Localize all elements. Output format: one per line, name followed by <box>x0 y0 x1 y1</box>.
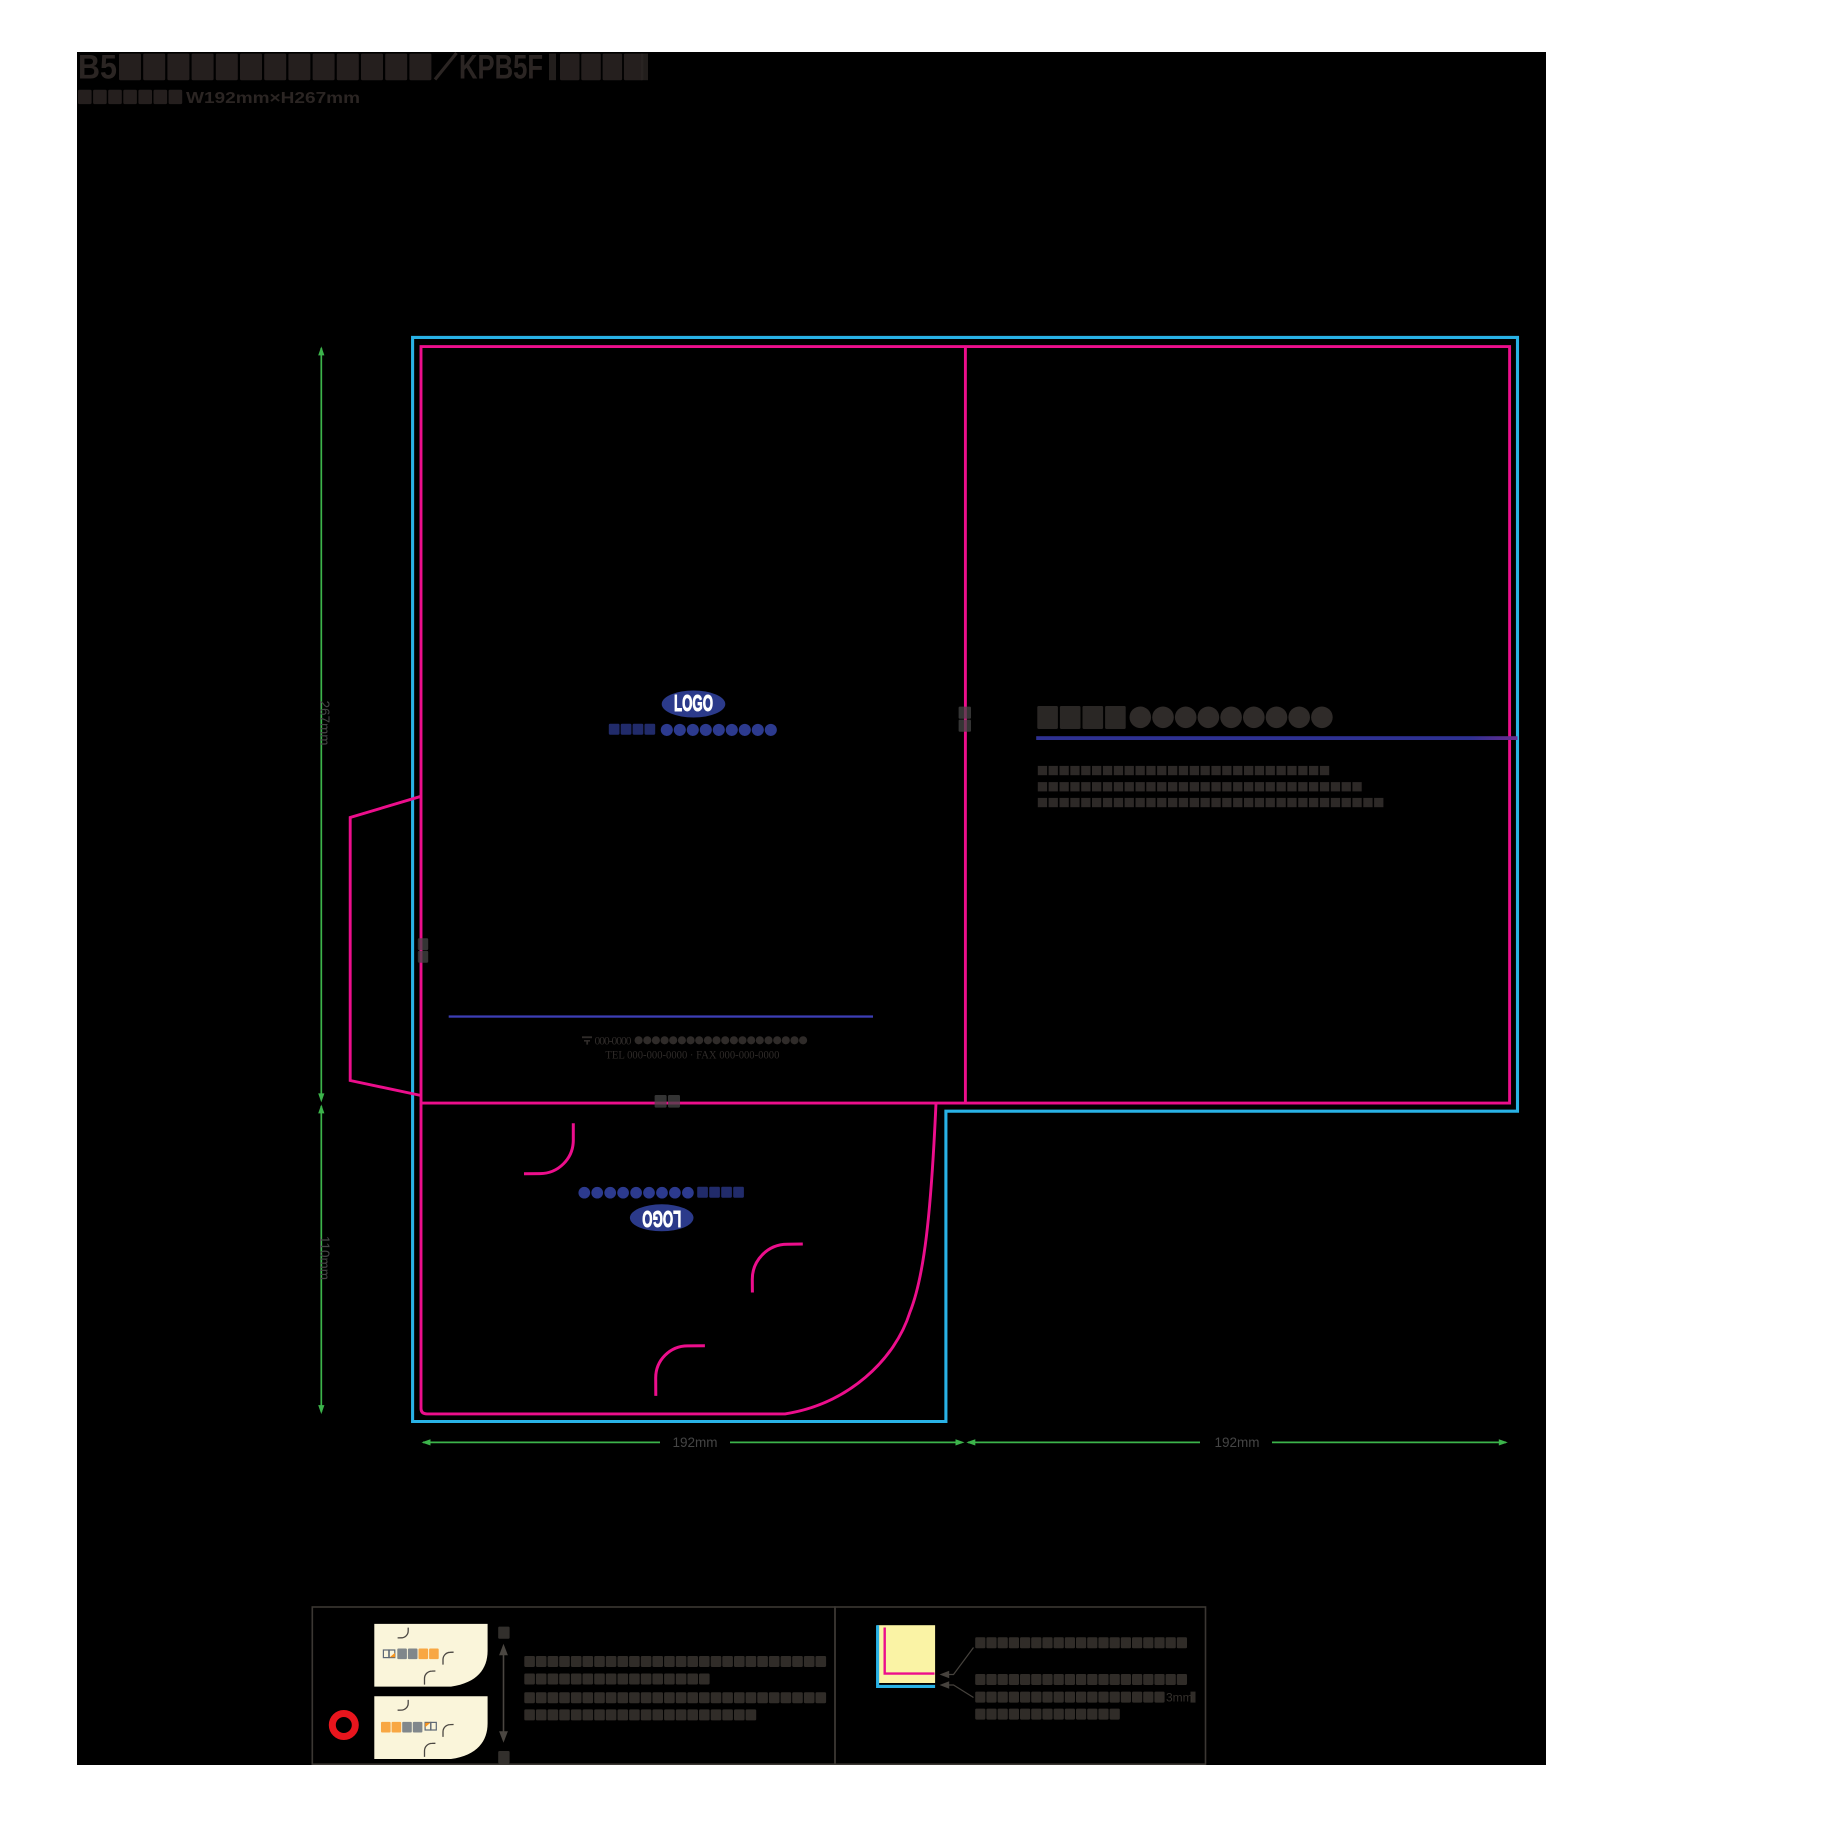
svg-text:192mm: 192mm <box>672 1435 717 1450</box>
svg-text:W192mm×H267mm: W192mm×H267mm <box>186 90 360 107</box>
svg-text:TEL 000-000-0000 · FAX 000-000: TEL 000-000-0000 · FAX 000-000-0000 <box>605 1048 779 1062</box>
svg-text:LOGO: LOGO <box>642 1206 681 1232</box>
svg-text:B5: B5 <box>78 49 117 87</box>
svg-text:LOGO: LOGO <box>674 690 713 716</box>
svg-text:110mm: 110mm <box>317 1236 332 1280</box>
svg-text:000-0000: 000-0000 <box>595 1035 632 1047</box>
svg-text:192mm: 192mm <box>1214 1435 1259 1450</box>
svg-text:267mm: 267mm <box>317 700 332 745</box>
svg-text:3mm: 3mm <box>1166 1691 1193 1705</box>
svg-text:KPB5F: KPB5F <box>459 49 543 87</box>
